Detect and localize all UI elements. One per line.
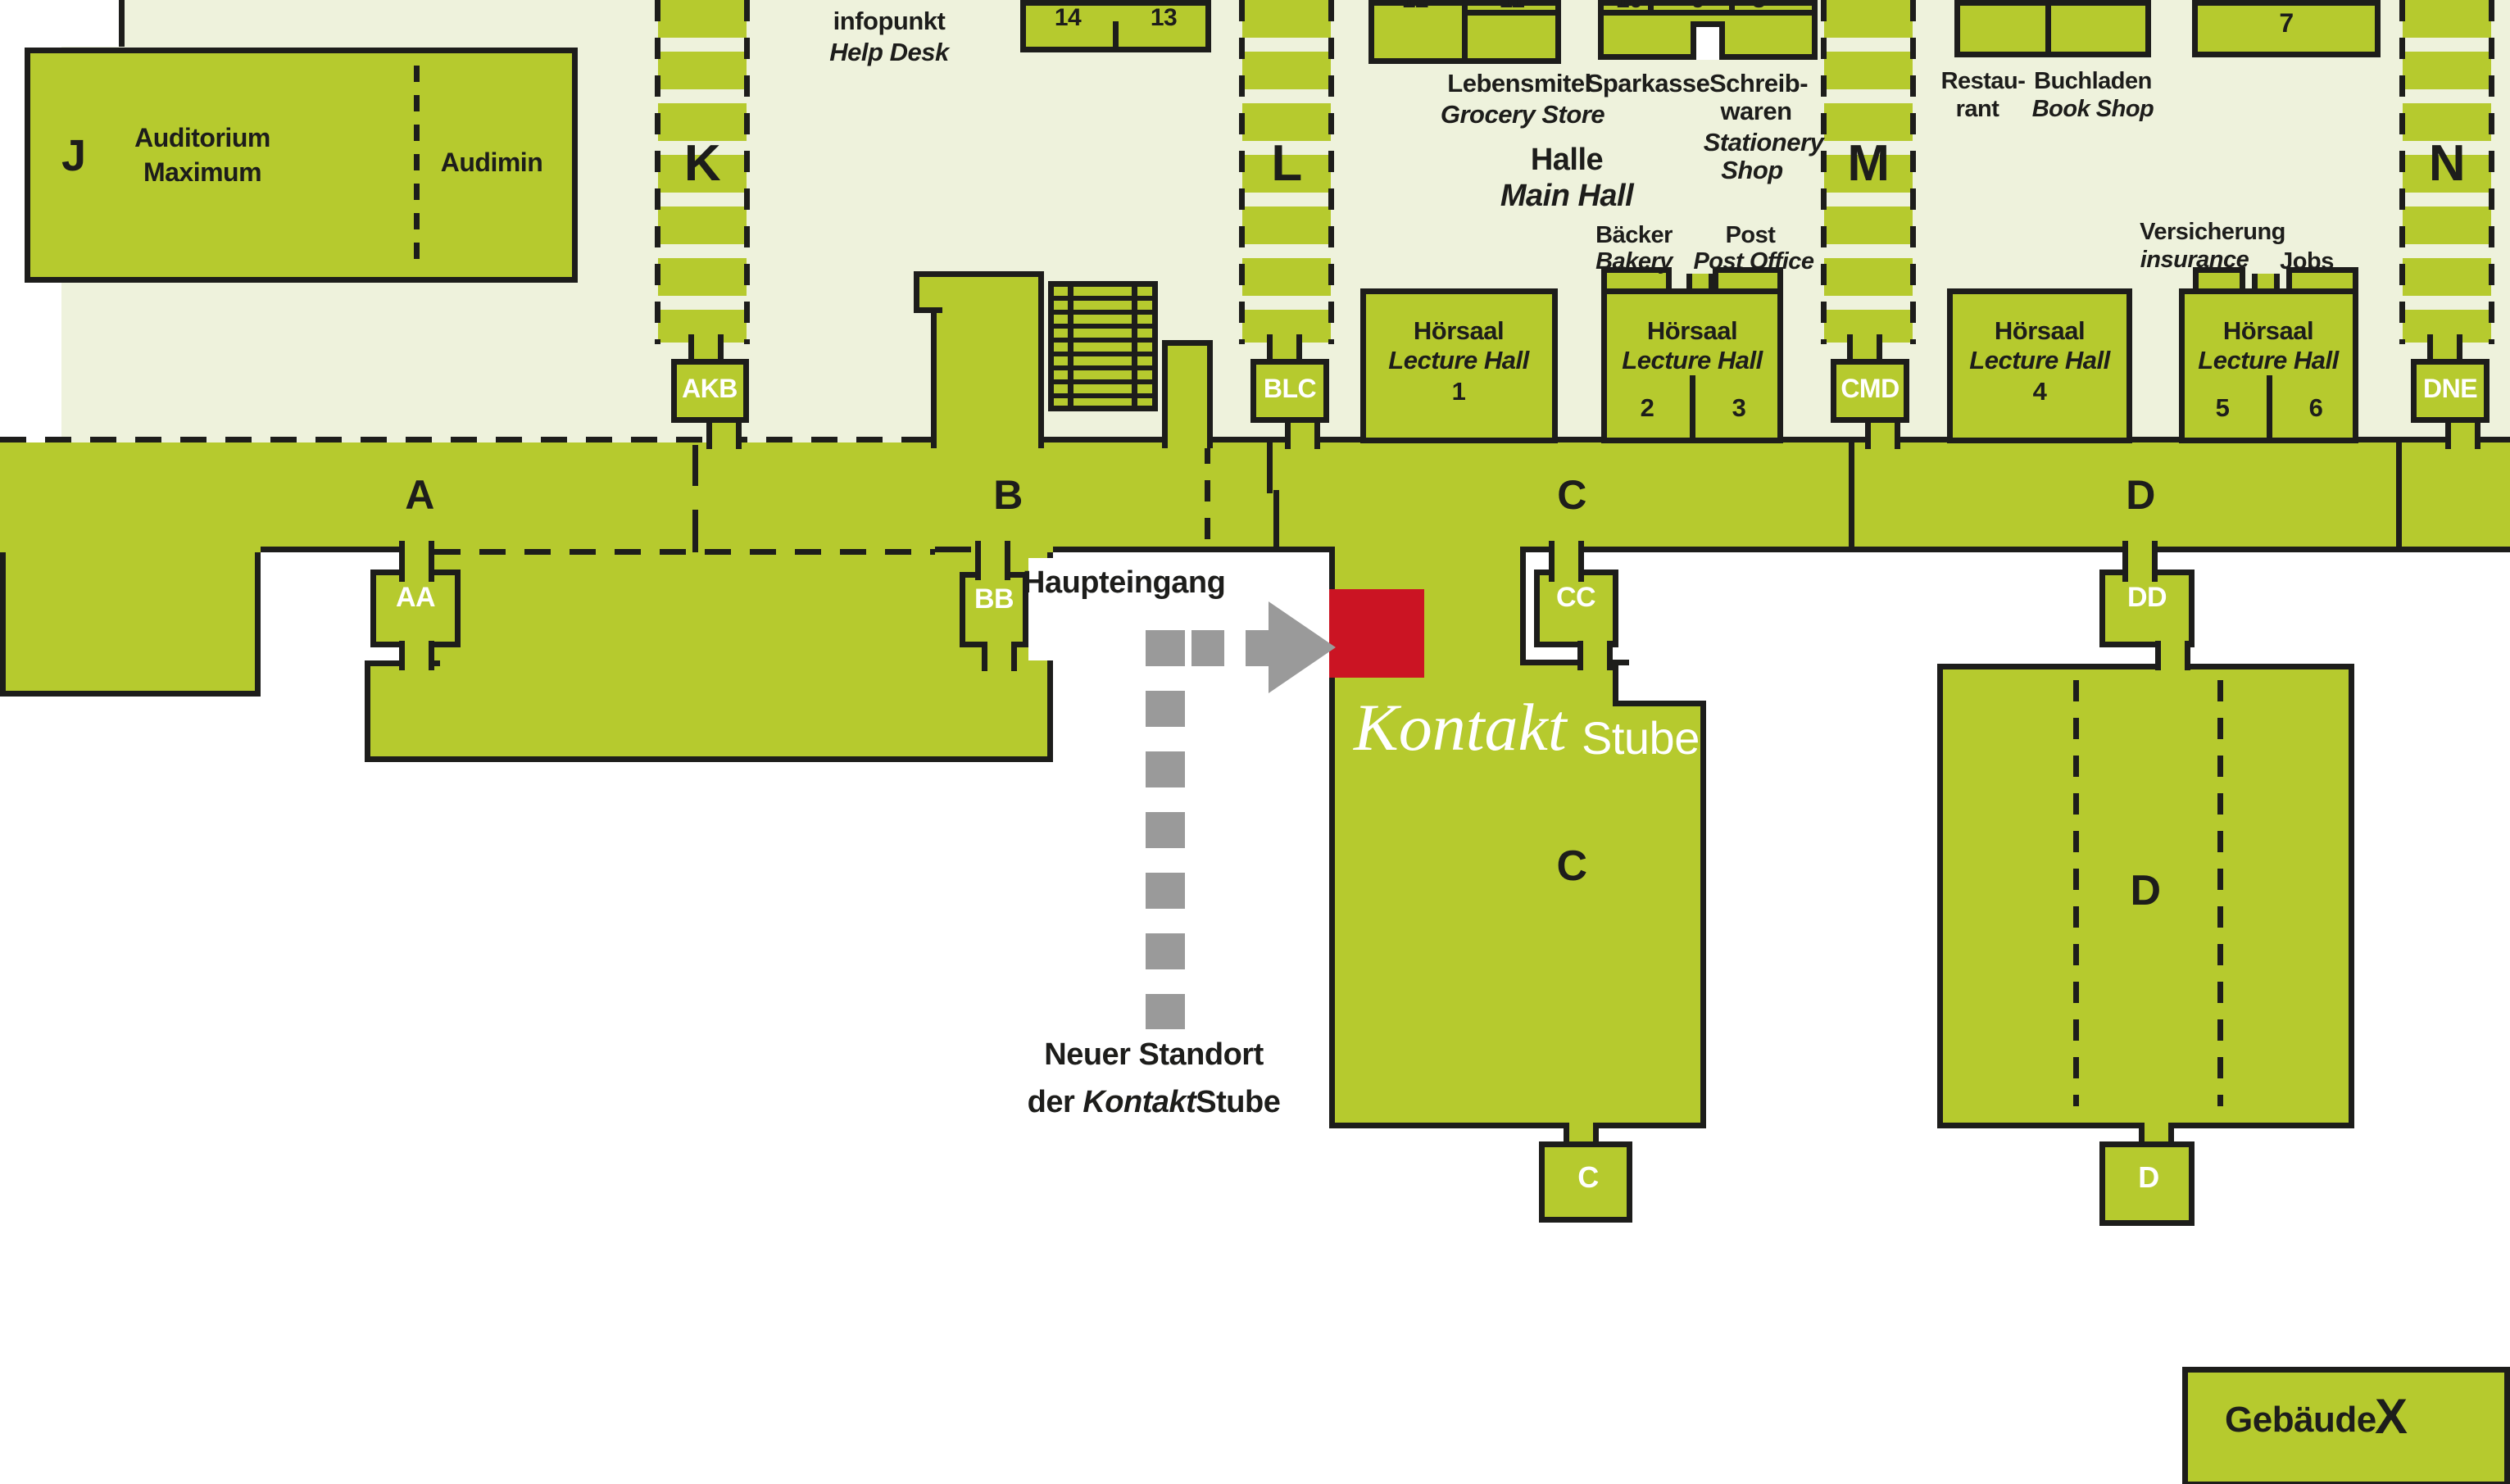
corridor-divider-ab bbox=[692, 510, 698, 552]
tower-n-dashed-wall bbox=[2399, 0, 2405, 344]
wall bbox=[365, 660, 370, 762]
room-9-label: 9 bbox=[1691, 0, 1704, 12]
restaurant-label: rant bbox=[1956, 97, 1999, 121]
room-divider bbox=[1648, 0, 1654, 14]
wall bbox=[255, 552, 261, 697]
path-dashed-horizontal bbox=[1191, 630, 1269, 666]
lecture-hall-1-number: 1 bbox=[1452, 379, 1466, 405]
tower-l-letter: L bbox=[1271, 138, 1301, 190]
tower-m-dashed-wall bbox=[1821, 0, 1827, 344]
kontaktstube-logo-plain: Stube bbox=[1582, 715, 1700, 762]
lecture-hall-1-label: Hörsaal bbox=[1414, 318, 1504, 344]
wall bbox=[1053, 547, 1335, 552]
c-exit-label: C bbox=[1577, 1162, 1599, 1192]
corridor-a-label: A bbox=[405, 474, 434, 516]
lecture-hall-4-number: 4 bbox=[2033, 379, 2047, 405]
tower-k-dashed-wall bbox=[655, 0, 660, 344]
dne-label: DNE bbox=[2423, 375, 2477, 402]
stairs-rail bbox=[1068, 281, 1073, 411]
wing-ab-block bbox=[365, 660, 434, 762]
cc-neck bbox=[1549, 541, 1584, 582]
wall bbox=[0, 552, 6, 697]
post-label: Post bbox=[1726, 223, 1776, 247]
wall bbox=[935, 547, 971, 552]
stationery-label-en: Shop bbox=[1721, 157, 1783, 184]
room-14-label: 14 bbox=[1055, 5, 1081, 30]
lecture-hall-56-label-en: Lecture Hall bbox=[2198, 347, 2338, 374]
new-location-italic: Kontakt bbox=[1083, 1085, 1196, 1119]
insurance-label: Versicherung bbox=[2140, 220, 2285, 244]
auditorium-maximum-label: Auditorium bbox=[134, 125, 270, 152]
auditorium-maximum-label: Maximum bbox=[143, 159, 261, 186]
bakery-label-en: Bakery bbox=[1595, 249, 1673, 274]
new-location-label-line2: der KontaktStube bbox=[1028, 1087, 1281, 1119]
lecture-hall-4-label: Hörsaal bbox=[1995, 318, 2085, 344]
tower-k-letter: K bbox=[684, 138, 720, 190]
grocery-label: Lebensmitel bbox=[1447, 70, 1591, 97]
tower-l-dashed-wall bbox=[1239, 0, 1245, 344]
tower-n-letter: N bbox=[2429, 138, 2465, 190]
path-dashed-vertical bbox=[1146, 630, 1185, 1029]
stationery-label: Schreib- bbox=[1709, 70, 1808, 97]
building-b-tower bbox=[937, 307, 1038, 448]
room-13-label: 13 bbox=[1151, 5, 1177, 30]
wall bbox=[1618, 701, 1706, 706]
corridor-divider-cd bbox=[1849, 442, 1854, 552]
room-divider bbox=[2267, 375, 2272, 438]
lecture-hall-23-label: Hörsaal bbox=[1647, 318, 1737, 344]
wing-d-divider bbox=[2217, 680, 2223, 1106]
room-8-label: 8 bbox=[1752, 0, 1765, 12]
restaurant-label: Restau- bbox=[1941, 69, 2026, 93]
corridor-divider-bc bbox=[1267, 442, 1273, 493]
floor-plan-map: AA BB J Auditorium Maximum Audimin K AKB… bbox=[0, 0, 2510, 1484]
kontaktstube-logo-script: Kontakt bbox=[1354, 692, 1567, 762]
wing-c bbox=[1335, 706, 1706, 1128]
bb-neck bbox=[982, 642, 1017, 671]
main-hall-label: Halle bbox=[1531, 144, 1603, 177]
d-exit-label: D bbox=[2138, 1162, 2159, 1192]
corridor-top-dashed-wall bbox=[0, 437, 919, 442]
wing-c-letter: C bbox=[1556, 844, 1586, 888]
infopunkt-label: infopunkt bbox=[833, 8, 946, 34]
cmd-label: CMD bbox=[1841, 375, 1899, 402]
wall bbox=[1162, 340, 1168, 448]
room-10-label: 10 bbox=[1616, 0, 1642, 12]
infopunkt-label-en: Help Desk bbox=[829, 39, 948, 66]
room-divider bbox=[1690, 375, 1695, 438]
lecture-hall-4-label-en: Lecture Hall bbox=[1969, 347, 2109, 374]
legend-gebaeude-label: Gebäude bbox=[2225, 1401, 2376, 1439]
lecture-hall-3-number: 3 bbox=[1732, 395, 1746, 421]
sparkasse-label: Sparkasse bbox=[1586, 70, 1710, 97]
lecture-hall-5-number: 5 bbox=[2216, 395, 2230, 421]
dd-label: DD bbox=[2127, 583, 2167, 612]
cc-neck bbox=[1577, 641, 1613, 670]
building-b-bar bbox=[1168, 346, 1207, 448]
tower-m-dashed-wall bbox=[1910, 0, 1916, 344]
insurance-label-en: insurance bbox=[2140, 247, 2249, 272]
corridor-b-label: B bbox=[993, 474, 1023, 516]
bookshop-label: Buchladen bbox=[2034, 69, 2152, 93]
wing-d-letter: D bbox=[2130, 869, 2160, 913]
bb-label: BB bbox=[974, 585, 1014, 614]
room-notch bbox=[1691, 21, 1725, 60]
stairs-rail bbox=[1132, 281, 1137, 411]
new-location-label: Neuer Standort bbox=[1044, 1039, 1263, 1072]
lecture-hall-23-label-en: Lecture Hall bbox=[1622, 347, 1762, 374]
corridor-divider-ab bbox=[692, 445, 698, 486]
room-divider bbox=[1729, 0, 1735, 14]
legend-building-letter: X bbox=[2375, 1391, 2408, 1442]
open-passage-dashed bbox=[434, 549, 935, 555]
room-12-label: 12 bbox=[1402, 0, 1428, 12]
bakery-label: Bäcker bbox=[1595, 223, 1673, 247]
blc-label: BLC bbox=[1264, 375, 1316, 402]
new-location-post: Stube bbox=[1196, 1085, 1280, 1119]
akb-label: AKB bbox=[682, 375, 738, 402]
wall bbox=[1207, 340, 1213, 448]
restaurant-bookshop-block bbox=[1954, 0, 2151, 57]
wall bbox=[914, 271, 1044, 277]
bookshop-label-en: Book Shop bbox=[2032, 97, 2154, 121]
room-divider bbox=[2045, 0, 2051, 57]
cc-label: CC bbox=[1556, 583, 1595, 612]
dd-neck bbox=[2122, 541, 2158, 582]
tower-n-dashed-wall bbox=[2489, 0, 2494, 344]
path-arrow-icon bbox=[1269, 601, 1336, 693]
lecture-hall-2-number: 2 bbox=[1641, 395, 1654, 421]
kontaktstube-location-marker bbox=[1329, 589, 1424, 678]
corridor-divider-bc bbox=[1273, 490, 1279, 552]
main-entrance-label: Haupteingang bbox=[1023, 567, 1225, 600]
wall bbox=[931, 307, 937, 448]
aa-neck bbox=[399, 641, 434, 670]
bb-neck bbox=[975, 541, 1010, 580]
wall bbox=[1700, 706, 1706, 1128]
dd-neck bbox=[2155, 641, 2190, 670]
corridor-divider-bc-dashed bbox=[1205, 442, 1210, 552]
audimin-label: Audimin bbox=[441, 149, 542, 176]
wall bbox=[0, 691, 261, 697]
tower-k-dashed-wall bbox=[744, 0, 750, 344]
wall bbox=[261, 547, 399, 552]
aa-neck bbox=[399, 541, 434, 582]
wall bbox=[1520, 547, 2510, 552]
main-hall-label-en: Main Hall bbox=[1500, 180, 1633, 213]
tower-l-dashed-wall bbox=[1328, 0, 1334, 344]
jobs-label: Jobs bbox=[2280, 249, 2334, 274]
corridor-d-label: D bbox=[2126, 474, 2155, 516]
stationery-label-en: Stationery bbox=[1704, 129, 1824, 156]
wall bbox=[365, 756, 1053, 762]
corridor-divider-d-end bbox=[2396, 442, 2402, 552]
new-location-pre: der bbox=[1028, 1085, 1083, 1119]
wing-d-divider bbox=[2073, 680, 2079, 1106]
room-11-label: 11 bbox=[1500, 0, 1525, 12]
lecture-hall-56-label: Hörsaal bbox=[2223, 318, 2313, 344]
lecture-hall-1-label-en: Lecture Hall bbox=[1388, 347, 1528, 374]
stationery-label: waren bbox=[1720, 98, 1791, 125]
lecture-hall-6-number: 6 bbox=[2309, 395, 2323, 421]
corridor-c-label: C bbox=[1557, 474, 1586, 516]
wall bbox=[1038, 271, 1044, 448]
room-divider bbox=[1113, 21, 1119, 52]
wall bbox=[1329, 1123, 1706, 1128]
grocery-label-en: Grocery Store bbox=[1441, 102, 1604, 128]
post-label-en: Post Office bbox=[1693, 249, 1813, 274]
building-j-letter: J bbox=[61, 133, 86, 179]
wall bbox=[119, 0, 125, 47]
aa-label: AA bbox=[396, 583, 435, 612]
building-j-divider bbox=[414, 66, 420, 262]
wall bbox=[1162, 340, 1213, 346]
room-7-label: 7 bbox=[2279, 10, 2293, 37]
wall bbox=[914, 307, 942, 313]
tower-m-letter: M bbox=[1847, 138, 1889, 190]
wing-a-extension bbox=[0, 552, 261, 697]
